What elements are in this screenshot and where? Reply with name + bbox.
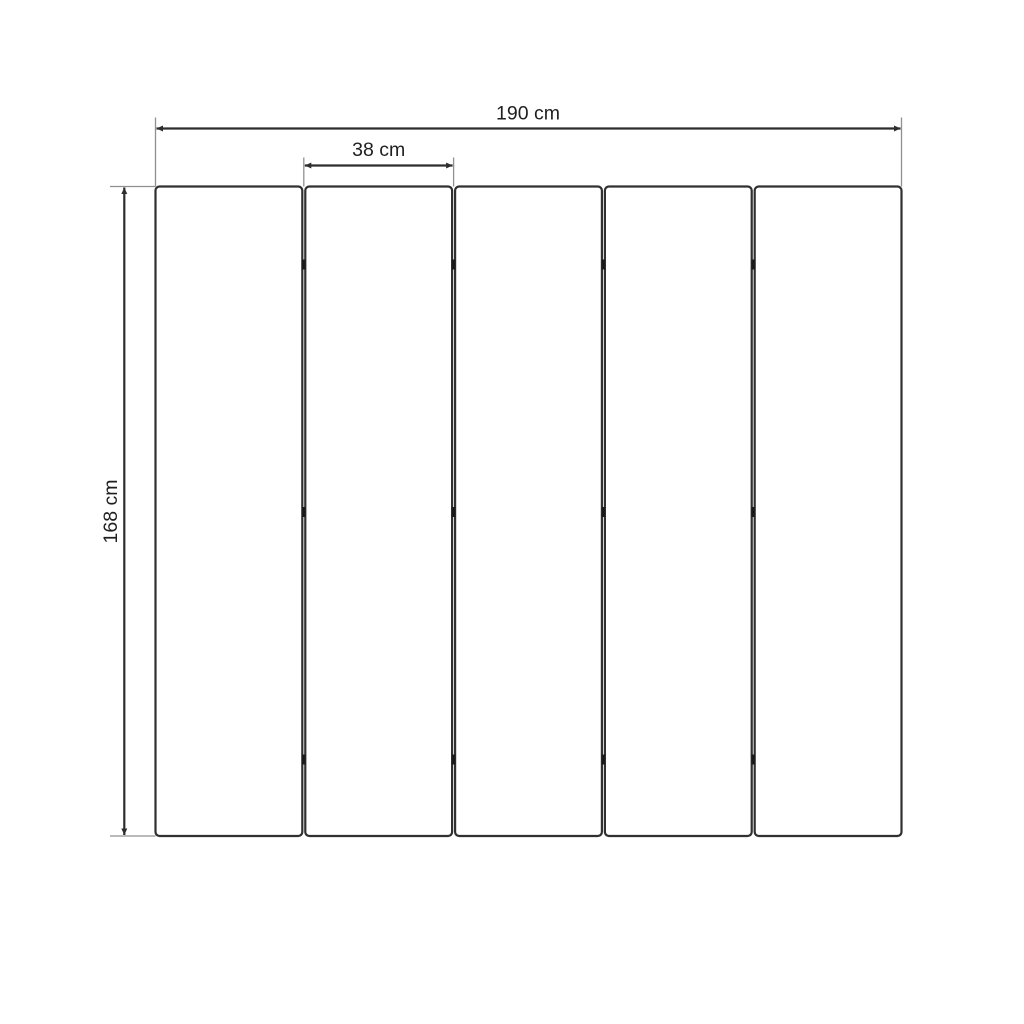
svg-text:168 cm: 168 cm bbox=[100, 480, 122, 544]
svg-text:190 cm: 190 cm bbox=[496, 103, 560, 125]
svg-text:38 cm: 38 cm bbox=[352, 139, 405, 161]
